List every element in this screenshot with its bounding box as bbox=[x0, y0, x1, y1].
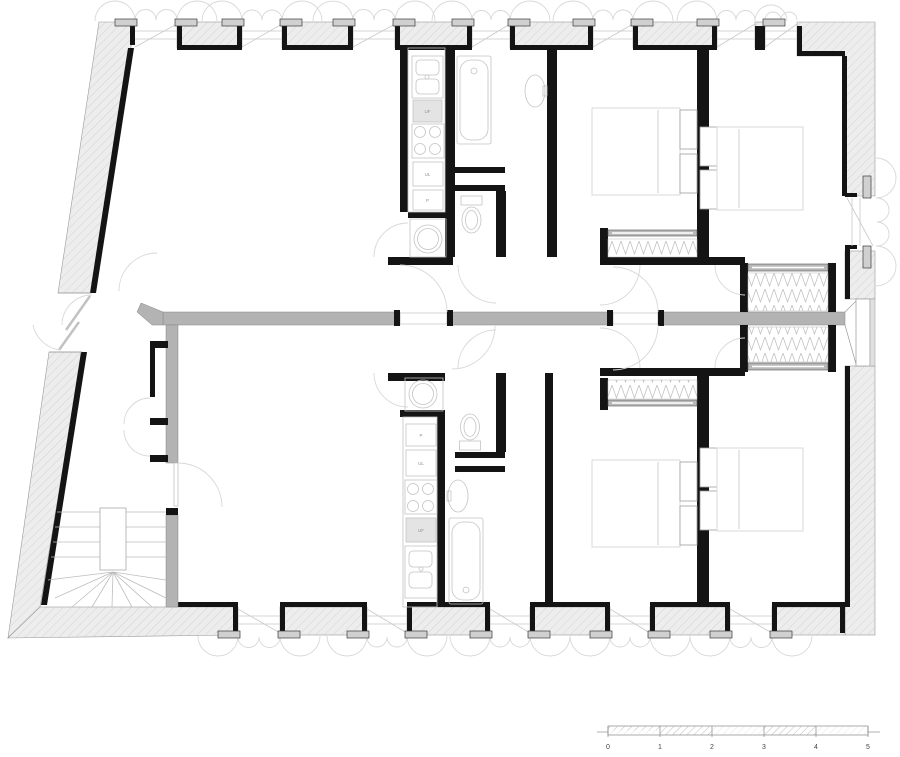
bathtub-lower bbox=[449, 518, 483, 604]
appliance-label: UL bbox=[425, 172, 431, 177]
wardrobe-bedroom1-lower bbox=[600, 378, 697, 410]
nightstand bbox=[680, 154, 697, 193]
scale-tick-label: 1 bbox=[658, 744, 662, 751]
cooktop-upper bbox=[412, 124, 444, 158]
nightstand bbox=[680, 110, 697, 149]
bed-bedroom1-lower bbox=[592, 460, 697, 547]
corridor-partition-wall bbox=[447, 312, 613, 325]
corridor-partition-wall bbox=[163, 312, 400, 325]
appliance-uf-upper: UF bbox=[413, 100, 442, 122]
bath-bedroom-wall bbox=[547, 48, 557, 257]
bed-bedroom2-upper bbox=[700, 127, 803, 210]
floor-plan-drawing: UF UL P P UL bbox=[0, 0, 900, 757]
toilet-lower bbox=[460, 414, 481, 450]
washing-machine-lower bbox=[405, 378, 443, 411]
scale-tick-label: 5 bbox=[866, 744, 870, 751]
washing-machine-upper bbox=[410, 219, 446, 257]
bed-bedroom1-upper bbox=[592, 108, 697, 195]
lower-apartment-entry-door bbox=[174, 463, 222, 507]
cooktop-lower bbox=[405, 480, 437, 514]
kitchen-wall bbox=[400, 48, 408, 212]
toilet-upper bbox=[461, 196, 482, 233]
scale-tick-label: 0 bbox=[606, 744, 610, 751]
appliance-label: UF bbox=[418, 528, 424, 533]
kitchen-sink-lower bbox=[405, 546, 437, 598]
nightstand bbox=[700, 448, 717, 487]
corridor-partition-wall bbox=[658, 312, 845, 325]
staircase bbox=[45, 508, 166, 607]
wc-upper bbox=[461, 196, 482, 233]
scale-tick-label: 2 bbox=[710, 744, 714, 751]
kitchen-upper: UF UL P bbox=[408, 48, 446, 257]
stair-newel bbox=[100, 508, 126, 570]
appliance-p-upper: P bbox=[413, 190, 443, 210]
wc-wall bbox=[496, 373, 506, 452]
bottom-wall-stair-section bbox=[8, 607, 238, 638]
closet-bedroom2-lower bbox=[740, 325, 836, 372]
bedroom-dividing-wall bbox=[697, 373, 709, 607]
appliance-label: UF bbox=[425, 109, 431, 114]
kitchen-bath-wall bbox=[445, 48, 455, 257]
appliance-label: UL bbox=[418, 461, 424, 466]
scale-bar: 0 1 2 3 4 5 bbox=[597, 726, 880, 751]
kitchen-sink-upper bbox=[412, 56, 443, 98]
partition-wedge bbox=[137, 303, 163, 325]
nightstand bbox=[700, 170, 717, 209]
appliance-ul-lower: UL bbox=[406, 450, 436, 476]
nightstand bbox=[700, 127, 717, 166]
wc-lower bbox=[460, 414, 481, 450]
washbasin-lower bbox=[447, 480, 468, 512]
wc-wall bbox=[496, 191, 506, 257]
nightstand bbox=[680, 462, 697, 501]
appliance-uf-lower: UF bbox=[406, 518, 436, 542]
nightstand bbox=[700, 491, 717, 530]
stair-partition-wall bbox=[166, 515, 178, 607]
bathtub-upper bbox=[457, 56, 491, 144]
floor-plan-page: UF UL P P UL bbox=[0, 0, 900, 757]
washbasin-upper bbox=[525, 75, 547, 107]
scale-tick-label: 3 bbox=[762, 744, 766, 751]
appliance-label: P bbox=[419, 433, 422, 438]
entrance-door bbox=[33, 293, 92, 352]
bathroom-upper bbox=[457, 56, 547, 144]
kitchen-wall bbox=[437, 417, 445, 607]
appliance-p-lower: P bbox=[406, 424, 436, 446]
bath-bedroom-wall bbox=[545, 373, 553, 607]
nightstand bbox=[680, 506, 697, 545]
top-right-corner-wall bbox=[797, 22, 875, 196]
bed-bedroom2-lower bbox=[700, 448, 803, 531]
scale-tick-label: 4 bbox=[814, 744, 818, 751]
bathroom-lower bbox=[447, 480, 483, 604]
appliance-ul-upper: UL bbox=[413, 162, 443, 186]
window-corridor-end bbox=[845, 299, 875, 366]
closet-bedroom2-upper bbox=[740, 263, 836, 312]
appliance-label: P bbox=[426, 198, 429, 203]
wardrobe-bedroom1-upper bbox=[600, 228, 697, 260]
